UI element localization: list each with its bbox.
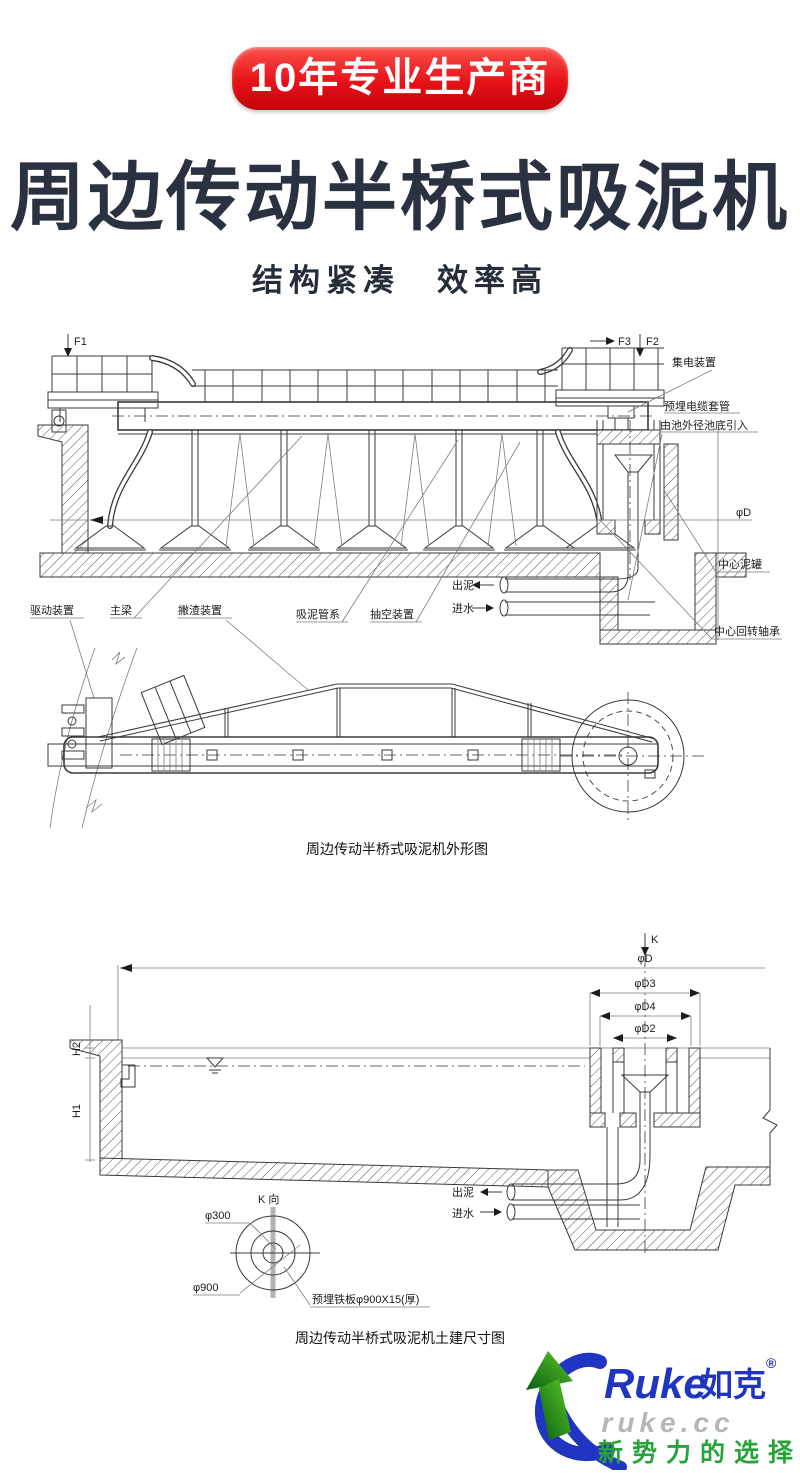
top-badge: 10年专业生产商	[232, 47, 568, 110]
section-arrow-f2: F2	[636, 334, 659, 357]
label-cable-sleeve: 预埋电缆套管	[664, 399, 730, 413]
pool-bottom	[100, 1158, 770, 1250]
label-main-beam: 主梁	[110, 603, 132, 617]
suction-pipes	[74, 430, 636, 550]
page-subtitle: 结构紧凑 效率高	[0, 255, 800, 300]
dimension-lines: φD φD3 φD4 φD2	[118, 953, 765, 1050]
label-f3: F3	[618, 336, 631, 348]
label-cable-leadin: 由池外径池底引入	[660, 418, 748, 432]
label-suction-pipes: 吸泥管系	[296, 607, 340, 621]
left-platform	[48, 356, 158, 432]
label-drive-unit: 驱动装置	[30, 604, 74, 617]
label-collector: 集电装置	[672, 355, 716, 369]
label-h1: H1	[71, 1104, 83, 1118]
label-f2: F2	[646, 336, 659, 348]
label-mud-out: 出泥	[452, 578, 474, 592]
civil-drawing-svg: K φD φD3 φD4 φD2	[0, 915, 800, 1350]
bell-mouths	[74, 430, 636, 550]
label-k-view: K 向	[258, 1192, 279, 1206]
bridge-railing	[192, 370, 558, 402]
main-beam	[112, 402, 655, 434]
plan-view	[48, 648, 706, 828]
pipes: 出泥 进水	[452, 1092, 650, 1227]
label-dia-300: φ300	[205, 1210, 231, 1222]
plan-drive-motor	[141, 675, 205, 744]
height-dimensions: H2 H1	[71, 1005, 95, 1162]
drawing1-caption: 周边传动半桥式吸泥机外形图	[306, 841, 488, 857]
label-vacuum-unit: 抽空装置	[370, 607, 414, 621]
label-k: K	[651, 934, 659, 946]
logo-brand-en: Ruke	[604, 1360, 707, 1407]
label-mud-out: 出泥	[452, 1185, 474, 1199]
k-view-detail: K 向 φ300 φ900 预埋铁板φ900X15(厚)	[193, 1192, 430, 1307]
label-water-in: 进水	[452, 602, 474, 615]
brand-logo: ruke.cc Ruke 如克 ® 新势力的选择	[518, 1346, 800, 1470]
label-dia-d: φD	[736, 507, 751, 519]
outline-drawing-svg: F1 F3 F2	[0, 330, 800, 875]
drawing2-caption: 周边传动半桥式吸泥机土建尺寸图	[295, 1330, 505, 1346]
registered-mark: ®	[766, 1355, 777, 1371]
label-center-mud-tank: 中心泥罐	[718, 558, 762, 571]
logo-slogan: 新势力的选择	[598, 1438, 800, 1467]
label-f1: F1	[74, 336, 87, 348]
break-line	[763, 1048, 777, 1167]
label-water-in: 进水	[452, 1207, 474, 1220]
section-arrow-f3: F3	[590, 336, 631, 348]
page-title: 周边传动半桥式吸泥机	[0, 136, 800, 245]
brace-triangles	[226, 434, 516, 546]
label-skimmer: 撇渣装置	[178, 603, 222, 617]
label-h2: H2	[71, 1042, 83, 1056]
label-center-bearing: 中心回转轴承	[714, 624, 780, 638]
label-embedded-plate: 预埋铁板φ900X15(厚)	[312, 1292, 419, 1306]
pipes-elevation	[500, 472, 655, 616]
page: 10年专业生产商 周边传动半桥式吸泥机 结构紧凑 效率高 F1 F3 F2	[0, 0, 800, 1473]
logo-watermark: ruke.cc	[601, 1407, 734, 1438]
pipe-labels: 出泥 进水	[452, 578, 494, 615]
logo-brand-cn: 如克	[700, 1366, 766, 1403]
label-dia-900: φ900	[193, 1282, 219, 1294]
section-arrow-f1: F1	[64, 334, 87, 357]
